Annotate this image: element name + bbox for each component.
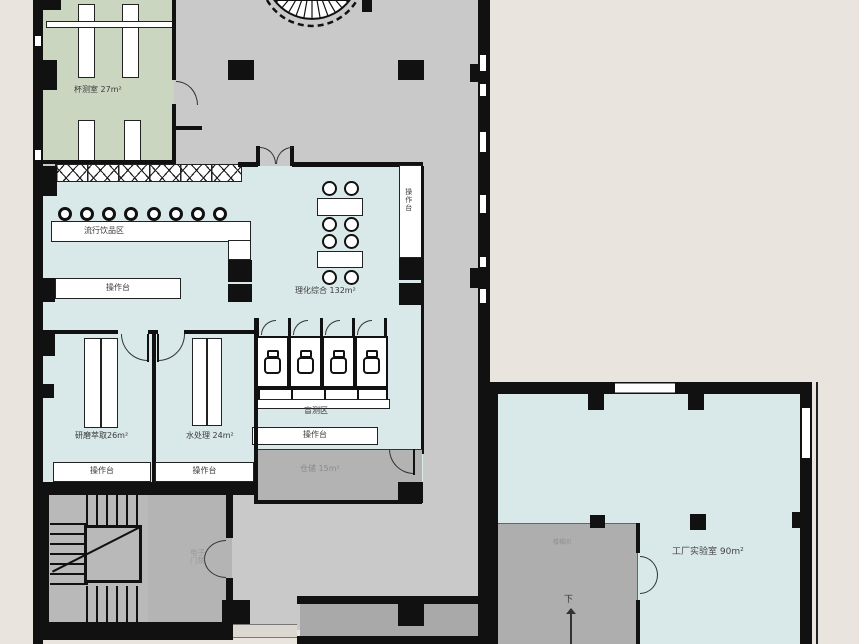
- stair-down-arrow: [566, 608, 576, 614]
- booth-cell: [355, 336, 388, 388]
- column: [33, 330, 55, 356]
- wall: [636, 523, 640, 553]
- prep-counter-label: 操作台: [155, 467, 254, 476]
- hatch-partition: [55, 164, 242, 182]
- chair: [344, 217, 359, 232]
- column: [590, 515, 605, 528]
- column: [399, 258, 422, 280]
- wall-stub: [362, 0, 372, 12]
- floor-plan-canvas: 杯测室 27m² 流行饮品区: [0, 0, 859, 644]
- prep-counter-label: 操作台: [53, 467, 151, 476]
- wall: [172, 0, 176, 80]
- column: [33, 60, 57, 90]
- work-table: [101, 338, 118, 428]
- cupping-table: [78, 4, 95, 78]
- cupping-table: [124, 120, 141, 164]
- column: [398, 482, 423, 503]
- beverage-counter-return: [228, 240, 251, 260]
- stair-down-label: 下: [564, 596, 573, 606]
- factory-wall-left: [482, 382, 498, 644]
- pilaster: [688, 394, 704, 410]
- chair: [322, 217, 337, 232]
- window: [35, 36, 41, 46]
- cupping-table: [122, 4, 139, 78]
- stool: [80, 207, 94, 221]
- pilaster: [470, 268, 480, 288]
- prep-counter-label: 操作台: [252, 431, 378, 440]
- blind-test-label: 盲测区: [286, 407, 346, 416]
- stair-landing: [84, 525, 142, 583]
- wall-left: [33, 0, 43, 644]
- window: [480, 195, 486, 213]
- stair-flight: [86, 586, 142, 624]
- wall: [297, 596, 482, 604]
- cupping-table: [78, 120, 95, 164]
- column: [399, 283, 422, 305]
- wall: [152, 334, 156, 482]
- service-area-label: 楼梯间: [553, 540, 571, 547]
- chair: [322, 181, 337, 196]
- window: [480, 55, 486, 71]
- wall: [172, 104, 176, 164]
- cupping-room-label: 杯测室 27m²: [74, 86, 122, 95]
- booth-cell: [289, 336, 322, 388]
- beverage-counter: [51, 221, 251, 242]
- wall: [33, 622, 233, 640]
- factory-window: [615, 383, 675, 393]
- booth-stub: [288, 318, 291, 336]
- door-leaf: [157, 334, 159, 362]
- factory-lab-label: 工厂实验室 90m²: [672, 548, 744, 558]
- beverage-area-label: 流行饮品区: [84, 227, 124, 236]
- chair: [344, 270, 359, 285]
- window: [480, 84, 486, 96]
- booth-stub: [352, 318, 355, 336]
- chair: [344, 181, 359, 196]
- booth-stub: [320, 318, 323, 336]
- wall: [636, 600, 640, 644]
- stool: [169, 207, 183, 221]
- window: [35, 150, 41, 160]
- work-table: [207, 338, 222, 426]
- wall: [184, 330, 256, 334]
- wall: [238, 162, 258, 167]
- booth-cell: [322, 336, 355, 388]
- door-leaf: [147, 334, 149, 362]
- pilaster: [792, 512, 802, 528]
- stool: [147, 207, 161, 221]
- stool: [102, 207, 116, 221]
- chair: [322, 234, 337, 249]
- column: [228, 260, 252, 282]
- window: [480, 257, 486, 267]
- column: [398, 60, 424, 80]
- site-line: [816, 382, 818, 644]
- lab-table: [317, 251, 363, 268]
- column: [33, 166, 57, 196]
- cupping-counter: [46, 21, 174, 28]
- window: [480, 132, 486, 152]
- entry-threshold: [233, 624, 297, 638]
- storage-label: 仓储 15m²: [300, 465, 340, 474]
- column: [228, 60, 254, 80]
- column: [42, 384, 54, 398]
- column: [690, 514, 706, 530]
- prep-counter-label: 操作台: [55, 284, 181, 293]
- pilaster: [470, 64, 480, 82]
- door-leaf: [413, 449, 415, 475]
- column: [398, 600, 424, 626]
- work-table: [84, 338, 101, 428]
- wall: [148, 488, 232, 495]
- wall: [226, 488, 233, 538]
- column: [33, 278, 55, 302]
- side-counter-label: 操作台: [404, 188, 412, 212]
- window: [802, 408, 810, 458]
- spiral-stair: [258, 0, 370, 28]
- stool: [213, 207, 227, 221]
- grinding-label: 研磨萃取26m²: [75, 432, 128, 441]
- wall-stub: [172, 126, 202, 130]
- lab-table: [317, 198, 363, 216]
- work-table: [192, 338, 207, 426]
- access-label: 电子 门禁: [190, 549, 205, 566]
- chair: [344, 234, 359, 249]
- stair-down-line: [570, 612, 572, 644]
- stool: [124, 207, 138, 221]
- column: [228, 284, 252, 302]
- wall: [254, 318, 258, 504]
- chair: [322, 270, 337, 285]
- booth-cell: [256, 336, 289, 388]
- wall: [421, 166, 424, 454]
- wall-stub: [33, 0, 61, 10]
- bottom-dark-area: [300, 604, 480, 636]
- window: [480, 289, 486, 303]
- water-label: 水处理 24m²: [186, 432, 234, 441]
- stool: [58, 207, 72, 221]
- wall: [297, 636, 482, 644]
- pilaster: [588, 394, 604, 410]
- stool: [191, 207, 205, 221]
- booth-stub: [384, 318, 387, 336]
- physchem-label: 理化综合 132m²: [295, 287, 356, 296]
